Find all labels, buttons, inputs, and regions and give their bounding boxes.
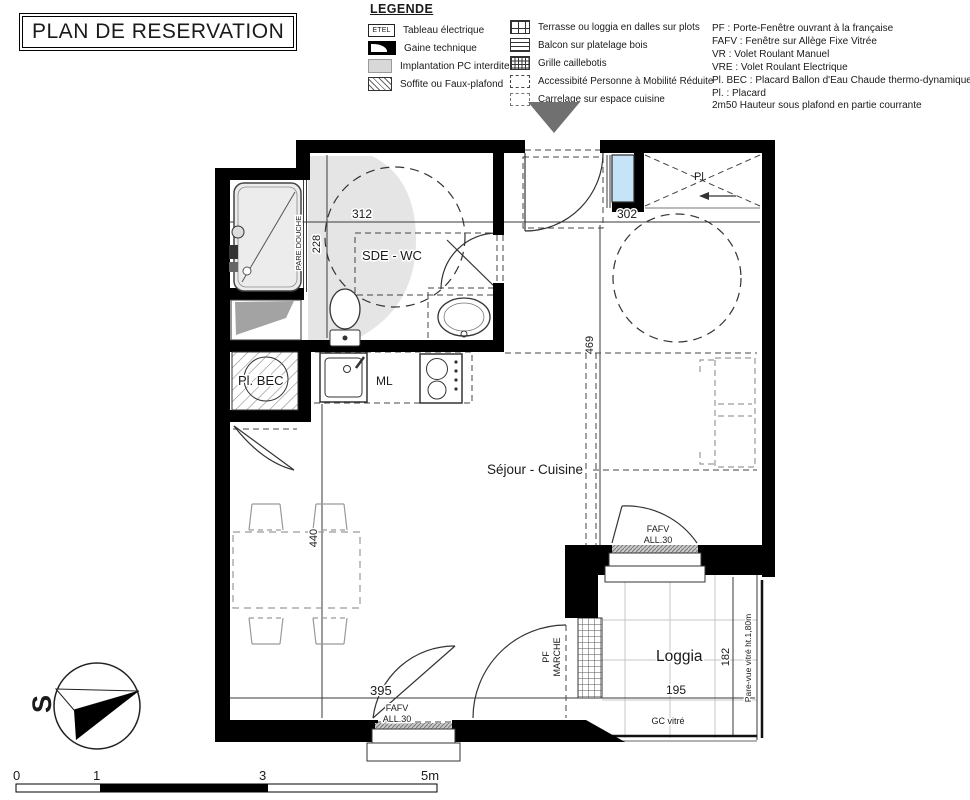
entrance-arrow-icon xyxy=(528,102,580,133)
room-label-placard-bec: Pl. BEC xyxy=(238,373,284,388)
kitchen-sink-unit xyxy=(320,353,367,402)
loggia-window-sill xyxy=(612,545,698,553)
blue-window xyxy=(612,155,634,202)
dim-440: 440 xyxy=(308,529,320,547)
compass-rose: S xyxy=(27,663,140,749)
windows xyxy=(367,155,705,761)
chair xyxy=(313,504,347,530)
scale-bar: 0 1 3 5m xyxy=(13,768,439,792)
dim-182: 182 xyxy=(720,648,732,666)
toilet-bowl xyxy=(330,289,360,329)
dining-table xyxy=(233,532,360,608)
label-fafv-east: FAFV xyxy=(647,524,670,534)
label-all30-east: ALL.30 xyxy=(644,535,673,545)
shower-valve xyxy=(232,226,244,238)
dim-302: 302 xyxy=(617,207,637,221)
dim-195: 195 xyxy=(666,683,686,697)
dim-228: 228 xyxy=(311,235,323,253)
label-fafv-south: FAFV xyxy=(386,703,409,713)
label-pare-douche: PARE DOUCHE xyxy=(294,216,303,270)
plan-de-reservation-page: PLAN DE RESERVATION LEGENDE ETEL Tableau… xyxy=(0,0,970,800)
scale-tick: 5m xyxy=(421,768,439,783)
label-pf: PF xyxy=(541,651,551,663)
bed xyxy=(700,358,755,467)
scale-tick: 3 xyxy=(259,768,266,783)
grating-strip xyxy=(578,618,602,698)
scale-tick: 1 xyxy=(93,768,100,783)
label-washing-machine: ML xyxy=(376,374,393,388)
dim-395: 395 xyxy=(370,683,392,698)
chair xyxy=(249,618,283,644)
dim-469: 469 xyxy=(584,336,596,354)
furniture xyxy=(233,358,755,644)
label-all30-south: ALL.30 xyxy=(383,714,412,724)
room-label-loggia: Loggia xyxy=(656,648,703,665)
chair xyxy=(313,618,347,644)
floor-plan: S 0 1 3 5m SDE - WC Séjour - Cuisine Log… xyxy=(0,0,970,800)
label-marche: MARCHE xyxy=(552,637,562,676)
label-gc-vitre: GC vitré xyxy=(651,716,684,726)
compass-south-letter: S xyxy=(27,695,57,713)
label-pare-vue: Pare-vue vitré ht.1,80m xyxy=(743,614,753,702)
room-label-sejour: Séjour - Cuisine xyxy=(487,462,583,477)
room-label-sde-wc: SDE - WC xyxy=(362,248,422,263)
washbasin xyxy=(438,298,490,336)
chair xyxy=(249,504,283,530)
room-label-placard: Pl. xyxy=(694,171,707,183)
scale-tick: 0 xyxy=(13,768,20,783)
dim-312: 312 xyxy=(352,207,372,221)
